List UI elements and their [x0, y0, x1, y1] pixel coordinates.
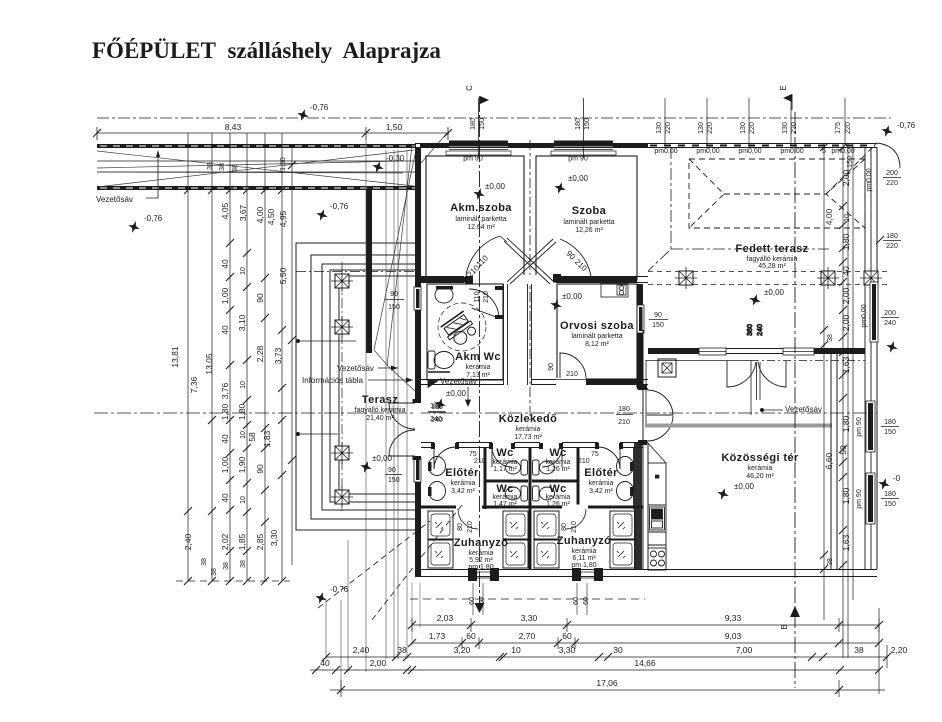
svg-text:±0,00: ±0,00: [485, 182, 506, 191]
svg-text:220: 220: [707, 122, 714, 134]
svg-text:1,26 m²: 1,26 m²: [546, 466, 570, 473]
svg-text:Wc: Wc: [549, 447, 566, 459]
svg-text:210: 210: [566, 371, 578, 378]
svg-text:pm0,00: pm0,00: [696, 148, 719, 155]
svg-text:1,80: 1,80: [841, 415, 851, 432]
svg-text:46,20 m²: 46,20 m²: [746, 473, 774, 480]
svg-text:210: 210: [467, 521, 474, 533]
svg-text:Szoba: Szoba: [572, 205, 607, 217]
svg-text:12,64 m²: 12,64 m²: [467, 224, 495, 231]
svg-text:38: 38: [223, 562, 230, 570]
svg-text:kerámia: kerámia: [516, 426, 541, 433]
svg-text:1,73: 1,73: [429, 631, 446, 641]
svg-text:Információs tábla: Információs tábla: [302, 376, 363, 385]
svg-text:90: 90: [654, 312, 662, 319]
svg-text:1,00: 1,00: [220, 287, 230, 304]
svg-text:90: 90: [388, 467, 396, 474]
svg-text:kerámia: kerámia: [748, 465, 773, 472]
svg-text:±0,00: ±0,00: [562, 292, 583, 301]
svg-text:laminált parketta: laminált parketta: [571, 333, 622, 340]
svg-text:150: 150: [652, 322, 664, 329]
svg-text:laminált parketta: laminált parketta: [563, 219, 614, 226]
svg-text:2,00: 2,00: [841, 287, 851, 304]
svg-text:pm0,00: pm0,00: [654, 148, 677, 155]
svg-text:-0,76: -0,76: [897, 121, 916, 130]
svg-text:2,40: 2,40: [353, 645, 370, 655]
svg-text:12,26 m²: 12,26 m²: [575, 227, 603, 234]
svg-text:10: 10: [844, 214, 851, 222]
svg-text:9,33: 9,33: [725, 613, 742, 623]
svg-text:4,05: 4,05: [220, 202, 230, 219]
svg-text:180: 180: [886, 233, 898, 240]
svg-text:75: 75: [469, 451, 477, 458]
svg-text:pm 1,80: pm 1,80: [571, 562, 596, 569]
svg-text:3,10: 3,10: [237, 314, 247, 331]
svg-text:180: 180: [618, 406, 630, 413]
svg-text:90: 90: [548, 363, 555, 371]
svg-text:1,50: 1,50: [386, 122, 403, 132]
svg-text:8,43: 8,43: [225, 122, 242, 132]
svg-text:38: 38: [240, 560, 247, 568]
svg-text:150: 150: [884, 429, 896, 436]
svg-text:220: 220: [886, 243, 898, 250]
svg-text:1,83: 1,83: [262, 430, 272, 447]
svg-text:40: 40: [220, 259, 230, 269]
svg-text:38: 38: [219, 163, 226, 171]
svg-text:130: 130: [740, 122, 747, 134]
svg-text:Akm.szoba: Akm.szoba: [450, 202, 512, 214]
svg-text:≡: ≡: [655, 474, 659, 481]
svg-text:3,30: 3,30: [521, 613, 538, 623]
svg-text:pm 90: pm 90: [568, 156, 588, 163]
svg-text:Vezetősáv: Vezetősáv: [337, 364, 374, 373]
svg-text:pm0,00: pm0,00: [861, 304, 868, 327]
svg-text:3,42 m²: 3,42 m²: [451, 488, 475, 495]
svg-text:220: 220: [749, 122, 756, 134]
svg-text:38: 38: [207, 162, 214, 170]
svg-text:150: 150: [884, 501, 896, 508]
svg-text:4,00: 4,00: [255, 206, 265, 223]
svg-text:3,30: 3,30: [269, 529, 279, 546]
svg-text:pm0,00: pm0,00: [738, 148, 761, 155]
svg-text:240: 240: [884, 320, 896, 327]
svg-text:2,00: 2,00: [370, 658, 387, 668]
svg-text:240: 240: [431, 417, 443, 424]
svg-text:kerámia: kerámia: [466, 364, 491, 371]
svg-text:4,00: 4,00: [824, 208, 834, 225]
svg-text:17,73 m²: 17,73 m²: [514, 434, 542, 441]
svg-text:kerámia: kerámia: [572, 548, 597, 555]
svg-text:Közlekedő: Közlekedő: [499, 413, 558, 425]
svg-text:5,50: 5,50: [278, 267, 288, 284]
svg-text:10: 10: [240, 431, 247, 439]
svg-text:-0,76: -0,76: [330, 202, 349, 211]
svg-text:10: 10: [240, 267, 247, 275]
svg-text:210: 210: [483, 291, 490, 303]
svg-text:laminált parketta: laminált parketta: [455, 216, 506, 223]
svg-text:-0: -0: [893, 474, 901, 483]
svg-text:2,00: 2,00: [841, 314, 851, 331]
svg-text:150: 150: [388, 477, 400, 484]
svg-text:90: 90: [255, 464, 265, 474]
svg-text:6,60: 6,60: [824, 452, 834, 469]
svg-text:38: 38: [854, 645, 864, 655]
svg-text:9,03: 9,03: [725, 631, 742, 641]
svg-text:75: 75: [591, 451, 599, 458]
svg-text:7,36: 7,36: [189, 376, 199, 393]
svg-text:200: 200: [884, 310, 896, 317]
svg-text:2,85: 2,85: [255, 533, 265, 550]
svg-text:60: 60: [466, 631, 476, 641]
svg-text:1,90: 1,90: [237, 456, 247, 473]
svg-text:-0,76: -0,76: [330, 585, 349, 594]
svg-text:240: 240: [757, 324, 764, 336]
svg-text:130: 130: [698, 122, 705, 134]
svg-text:1,80: 1,80: [220, 403, 230, 420]
svg-text:1,00: 1,00: [220, 456, 230, 473]
svg-text:1,85: 1,85: [237, 533, 247, 550]
svg-text:pm 90: pm 90: [856, 489, 863, 509]
svg-text:10: 10: [240, 381, 247, 389]
svg-text:40: 40: [841, 266, 851, 276]
svg-text:1,26 m²: 1,26 m²: [546, 501, 570, 508]
svg-text:fagyálló kerámia: fagyálló kerámia: [747, 256, 798, 263]
svg-text:80: 80: [561, 523, 568, 531]
svg-text:180: 180: [884, 491, 896, 498]
svg-text:Vezetősáv: Vezetősáv: [785, 405, 822, 414]
svg-text:±0,00: ±0,00: [568, 174, 589, 183]
svg-text:2,02: 2,02: [220, 533, 230, 550]
svg-text:Wc: Wc: [496, 447, 513, 459]
svg-text:58: 58: [247, 432, 257, 442]
svg-text:FŐÉPÜLET szálláshely Alapraj: FŐÉPÜLET szálláshely Alaprajza: [92, 37, 441, 63]
svg-text:Vezetősáv: Vezetősáv: [440, 377, 477, 386]
svg-text:kerámia: kerámia: [546, 459, 571, 466]
svg-text:Zuhanyzó: Zuhanyzó: [454, 537, 509, 549]
svg-text:1,80: 1,80: [841, 233, 851, 250]
svg-text:±0,00: ±0,00: [734, 482, 755, 491]
svg-text:6,11 m²: 6,11 m²: [572, 555, 596, 562]
svg-text:±0,00: ±0,00: [764, 288, 785, 297]
svg-text:38: 38: [232, 164, 239, 172]
svg-text:1,63: 1,63: [841, 534, 851, 551]
svg-text:90: 90: [255, 293, 265, 303]
svg-text:-0,76: -0,76: [144, 214, 163, 223]
svg-text:60: 60: [583, 597, 590, 605]
svg-text:Közösségi tér: Közösségi tér: [721, 452, 799, 464]
svg-text:90: 90: [390, 291, 398, 298]
svg-text:60: 60: [562, 631, 572, 641]
svg-text:38: 38: [827, 334, 834, 342]
svg-text:2,00: 2,00: [841, 169, 851, 186]
svg-text:Előtér: Előtér: [445, 467, 479, 479]
svg-text:3,42 m²: 3,42 m²: [589, 488, 613, 495]
svg-text:1,63: 1,63: [841, 356, 851, 373]
svg-text:8,12 m²: 8,12 m²: [585, 341, 609, 348]
svg-text:200: 200: [886, 170, 898, 177]
svg-text:1,50: 1,50: [280, 157, 287, 171]
svg-text:Zuhanyzó: Zuhanyzó: [557, 535, 612, 547]
svg-text:175: 175: [835, 122, 842, 134]
svg-text:130: 130: [656, 122, 663, 134]
svg-text:Előtér: Előtér: [584, 467, 618, 479]
svg-text:-0,30: -0,30: [386, 154, 405, 163]
svg-text:210: 210: [578, 458, 590, 465]
svg-text:220: 220: [886, 180, 898, 187]
svg-text:pm0,00: pm0,00: [780, 148, 803, 155]
svg-text:Orvosi szoba: Orvosi szoba: [560, 320, 634, 332]
svg-text:2,40: 2,40: [183, 533, 193, 550]
svg-text:Vezetősáv: Vezetősáv: [96, 195, 133, 204]
svg-text:7,00: 7,00: [736, 645, 753, 655]
svg-text:2,28: 2,28: [255, 345, 265, 362]
svg-text:220: 220: [791, 122, 798, 134]
svg-text:30: 30: [613, 645, 623, 655]
svg-text:kerámia: kerámia: [451, 480, 476, 487]
svg-text:3,30: 3,30: [559, 645, 576, 655]
svg-text:1,80: 1,80: [841, 487, 851, 504]
svg-text:40: 40: [220, 493, 230, 503]
svg-text:3,76: 3,76: [220, 382, 230, 399]
svg-text:80: 80: [457, 523, 464, 531]
svg-text:110: 110: [474, 291, 481, 302]
svg-text:38: 38: [201, 558, 208, 566]
svg-text:21,40 m²: 21,40 m²: [366, 415, 394, 422]
svg-text:3,73: 3,73: [273, 347, 283, 364]
svg-text:E: E: [779, 85, 788, 90]
svg-text:220: 220: [665, 122, 672, 134]
svg-text:50: 50: [838, 445, 848, 455]
svg-text:2,20: 2,20: [891, 645, 908, 655]
svg-text:180: 180: [575, 118, 582, 130]
svg-text:1,80: 1,80: [237, 403, 247, 420]
svg-text:150: 150: [584, 118, 591, 130]
svg-text:kerámia: kerámia: [493, 459, 518, 466]
svg-text:40: 40: [220, 325, 230, 335]
svg-text:150: 150: [479, 118, 486, 130]
svg-text:180: 180: [884, 419, 896, 426]
svg-text:38: 38: [397, 645, 407, 655]
svg-text:Akm Wc: Akm Wc: [455, 351, 501, 363]
svg-text:4,95: 4,95: [278, 210, 288, 227]
svg-text:180: 180: [431, 404, 443, 411]
svg-text:Terasz: Terasz: [362, 394, 399, 406]
svg-text:2,70: 2,70: [519, 631, 536, 641]
svg-text:1,47 m²: 1,47 m²: [493, 501, 517, 508]
svg-text:150: 150: [388, 304, 400, 311]
svg-text:220: 220: [845, 122, 852, 134]
svg-text:40: 40: [320, 658, 330, 668]
svg-text:±0,00: ±0,00: [446, 389, 467, 398]
svg-text:4,50: 4,50: [266, 208, 276, 225]
svg-text:10: 10: [240, 496, 247, 504]
svg-text:fagyálló kerámia: fagyálló kerámia: [355, 407, 406, 414]
svg-text:40: 40: [220, 434, 230, 444]
svg-text:3,67: 3,67: [238, 204, 248, 221]
svg-text:180: 180: [470, 118, 477, 130]
svg-text:pm0,00: pm0,00: [866, 168, 873, 191]
svg-text:360: 360: [747, 324, 754, 336]
svg-text:kerámia: kerámia: [469, 550, 494, 557]
svg-text:45,28 m²: 45,28 m²: [758, 263, 786, 270]
svg-text:2,03: 2,03: [437, 613, 454, 623]
svg-text:210: 210: [618, 419, 630, 426]
svg-text:38: 38: [211, 568, 218, 576]
svg-text:kerámia: kerámia: [589, 480, 614, 487]
svg-text:130: 130: [782, 122, 789, 134]
svg-text:C: C: [465, 85, 474, 91]
svg-text:38: 38: [827, 558, 834, 566]
svg-text:5,92 m²: 5,92 m²: [469, 557, 493, 564]
svg-text:3,20: 3,20: [454, 645, 471, 655]
svg-text:14,66: 14,66: [634, 658, 656, 668]
svg-text:60: 60: [573, 597, 580, 605]
svg-text:17,06: 17,06: [596, 678, 618, 688]
svg-text:pm 90: pm 90: [856, 417, 863, 437]
svg-text:13,81: 13,81: [170, 346, 180, 368]
svg-text:-0,76: -0,76: [310, 103, 329, 112]
svg-text:10: 10: [511, 645, 521, 655]
svg-text:13,05: 13,05: [204, 353, 214, 375]
